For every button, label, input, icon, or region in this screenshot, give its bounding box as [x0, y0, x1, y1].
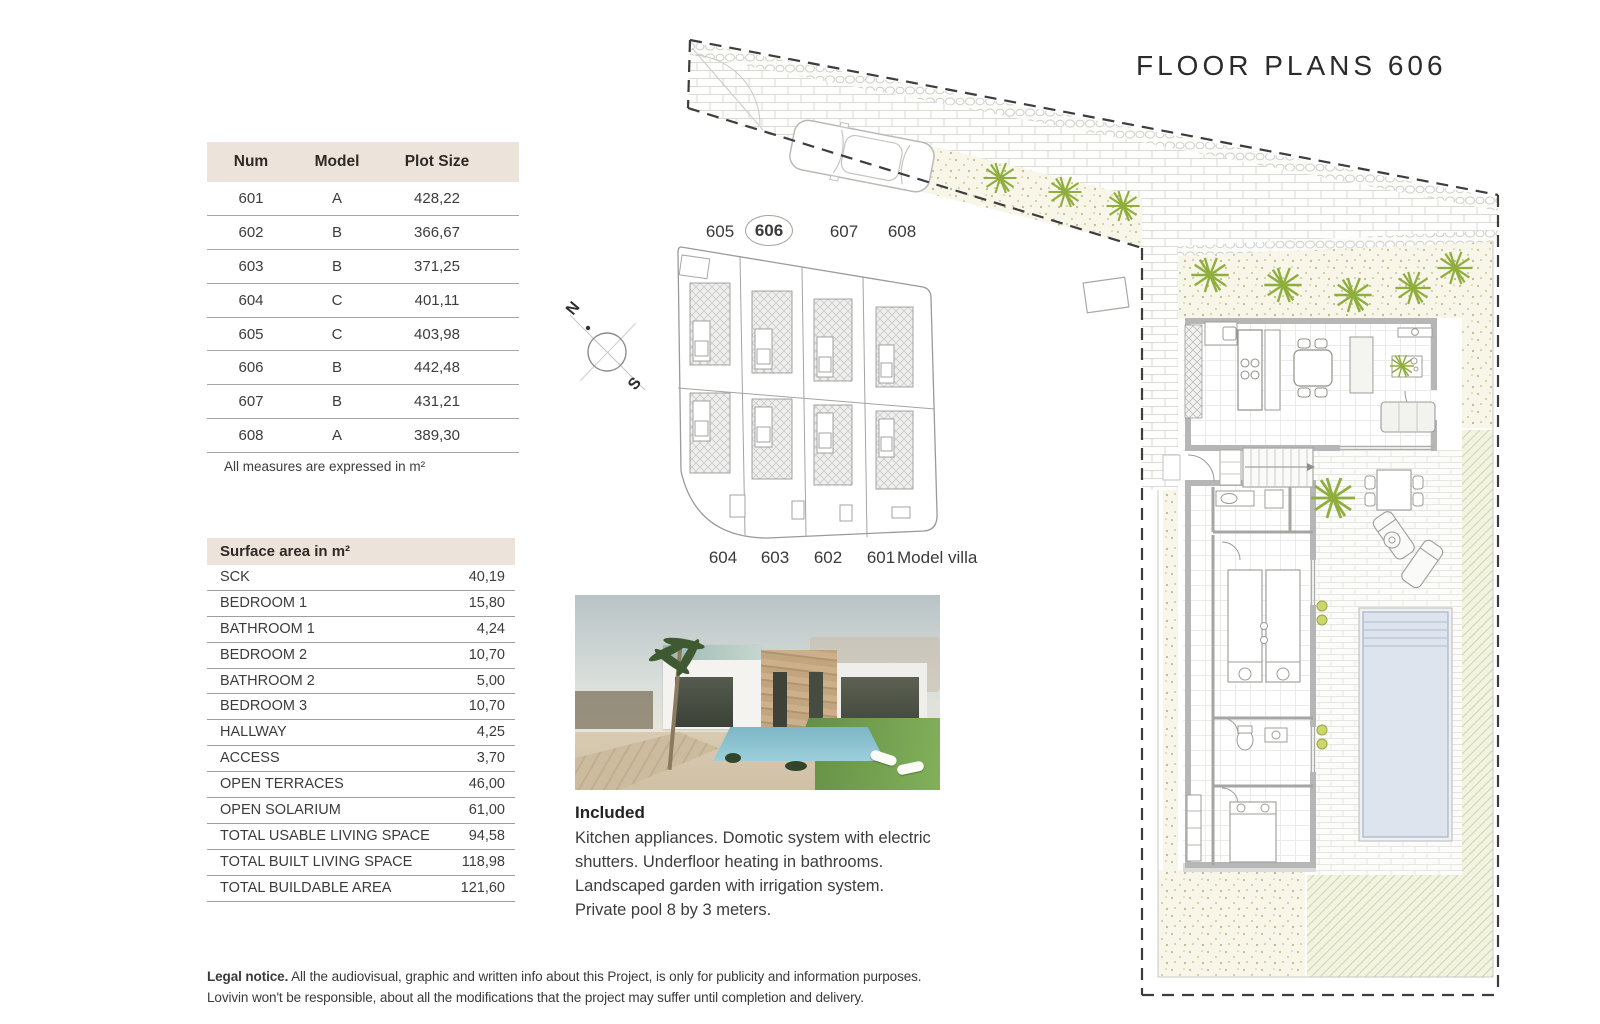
floor-plans-page: FLOOR PLANS 606 Num Model Plot Size 601A… [0, 0, 1600, 1024]
plots-table-cell: 366,67 [379, 224, 495, 241]
kitchen-counter [1265, 330, 1280, 410]
garden-gravel-bottom [1158, 870, 1305, 977]
surface-room-label: TOTAL BUILT LIVING SPACE [220, 850, 412, 875]
staircase [1243, 448, 1315, 487]
plots-table-cell: B [295, 258, 379, 275]
surface-table-row: TOTAL BUILT LIVING SPACE118,98 [207, 850, 515, 876]
surface-table-row: SCK40,19 [207, 565, 515, 591]
surface-room-value: 40,19 [469, 565, 505, 590]
plots-table-row: 606B442,48 [207, 351, 519, 385]
included-heading: Included [575, 803, 645, 823]
plots-table: Num Model Plot Size 601A428,22602B366,67… [207, 142, 519, 453]
surface-table-row: BATHROOM 14,24 [207, 617, 515, 643]
plots-table-cell: A [295, 427, 379, 444]
surface-room-label: TOTAL USABLE LIVING SPACE [220, 824, 430, 849]
plots-table-cell: C [295, 326, 379, 343]
surface-room-label: BATHROOM 1 [220, 617, 315, 642]
surface-table-rows: SCK40,19BEDROOM 115,80BATHROOM 14,24BEDR… [207, 565, 515, 902]
plots-table-row: 607B431,21 [207, 385, 519, 419]
plots-table-cell: A [295, 190, 379, 207]
solarium-hatch-bottom [1307, 875, 1493, 977]
plots-table-cell: 371,25 [379, 258, 495, 275]
surface-room-label: OPEN TERRACES [220, 772, 344, 797]
surface-room-value: 4,24 [477, 617, 505, 642]
surface-table-row: BATHROOM 25,00 [207, 669, 515, 695]
surface-room-label: BEDROOM 3 [220, 694, 307, 719]
surface-table-row: TOTAL USABLE LIVING SPACE94,58 [207, 824, 515, 850]
plots-table-cell: B [295, 224, 379, 241]
surface-room-value: 5,00 [477, 669, 505, 694]
measures-note: All measures are expressed in m² [224, 459, 425, 474]
plots-table-cell: 442,48 [379, 359, 495, 376]
surface-room-value: 10,70 [469, 694, 505, 719]
plots-table-row: 605C403,98 [207, 318, 519, 352]
surface-table-header: Surface area in m² [207, 538, 515, 565]
plots-table-cell: 431,21 [379, 393, 495, 410]
plots-table-cell: 401,11 [379, 292, 495, 309]
hall-closet [1220, 450, 1241, 485]
surface-room-value: 15,80 [469, 591, 505, 616]
col-plot-size: Plot Size [379, 153, 495, 171]
surface-room-value: 61,00 [469, 798, 505, 823]
plots-table-cell: 605 [207, 326, 295, 343]
surface-room-label: HALLWAY [220, 720, 287, 745]
plots-table-cell: 389,30 [379, 427, 495, 444]
entry-porch [1163, 455, 1180, 480]
photo-fence [575, 691, 653, 729]
surface-room-label: SCK [220, 565, 250, 590]
solarium-hatch-strip [1462, 430, 1493, 875]
col-model: Model [295, 153, 379, 171]
plots-table-cell: 607 [207, 393, 295, 410]
surface-table-row: TOTAL BUILDABLE AREA121,60 [207, 876, 515, 902]
surface-table-row: BEDROOM 210,70 [207, 643, 515, 669]
plots-table-cell: 601 [207, 190, 295, 207]
plots-table-row: 603B371,25 [207, 250, 519, 284]
surface-room-value: 4,25 [477, 720, 505, 745]
surface-table: Surface area in m² SCK40,19BEDROOM 115,8… [207, 538, 515, 902]
surface-room-label: BATHROOM 2 [220, 669, 315, 694]
compass-south-label: S [625, 374, 645, 393]
side-brick-path [1142, 238, 1178, 490]
surface-table-row: OPEN SOLARIUM61,00 [207, 798, 515, 824]
plots-table-cell: C [295, 292, 379, 309]
surface-table-row: ACCESS3,70 [207, 746, 515, 772]
plots-table-header: Num Model Plot Size [207, 142, 519, 182]
plots-table-row: 604C401,11 [207, 284, 519, 318]
kitchen-island [1238, 330, 1262, 410]
surface-room-value: 118,98 [462, 850, 505, 875]
plots-table-cell: 602 [207, 224, 295, 241]
compass-icon: N S [563, 299, 645, 394]
col-num: Num [207, 153, 295, 171]
surface-room-value: 94,58 [469, 824, 505, 849]
access-road [688, 42, 1498, 260]
surface-room-value: 121,60 [461, 876, 505, 901]
bedroom-2-bed [1187, 795, 1276, 862]
plots-table-cell: 604 [207, 292, 295, 309]
surface-room-label: BEDROOM 2 [220, 643, 307, 668]
plots-table-rows: 601A428,22602B366,67603B371,25604C401,11… [207, 182, 519, 453]
plots-table-row: 601A428,22 [207, 182, 519, 216]
swimming-pool [1359, 608, 1452, 841]
plots-table-cell: B [295, 393, 379, 410]
plots-table-cell: 428,22 [379, 190, 495, 207]
surface-room-label: OPEN SOLARIUM [220, 798, 341, 823]
plots-table-cell: 603 [207, 258, 295, 275]
plots-table-row: 602B366,67 [207, 216, 519, 250]
surface-table-row: OPEN TERRACES46,00 [207, 772, 515, 798]
kitchen-sink [1223, 327, 1236, 340]
sofa [1381, 402, 1435, 432]
plots-table-cell: 606 [207, 359, 295, 376]
compass-north-label: N [563, 299, 583, 319]
shelving-unit [1350, 337, 1373, 393]
surface-table-row: HALLWAY4,25 [207, 720, 515, 746]
plots-table-cell: B [295, 359, 379, 376]
plots-table-cell: 403,98 [379, 326, 495, 343]
bathroom-1 [1216, 490, 1283, 508]
plots-table-row: 608A389,30 [207, 419, 519, 453]
utility-pad [1083, 277, 1129, 313]
surface-table-row: BEDROOM 115,80 [207, 591, 515, 617]
plots-table-cell: 608 [207, 427, 295, 444]
surface-room-value: 3,70 [477, 746, 505, 771]
surface-room-label: TOTAL BUILDABLE AREA [220, 876, 391, 901]
kitchen-tall-units [1185, 325, 1202, 418]
surface-room-label: ACCESS [220, 746, 280, 771]
surface-room-value: 46,00 [469, 772, 505, 797]
surface-room-value: 10,70 [469, 643, 505, 668]
surface-table-row: BEDROOM 310,70 [207, 694, 515, 720]
floor-plan-606-drawing [665, 30, 1535, 1005]
surface-room-label: BEDROOM 1 [220, 591, 307, 616]
legal-bold: Legal notice. [207, 969, 288, 984]
